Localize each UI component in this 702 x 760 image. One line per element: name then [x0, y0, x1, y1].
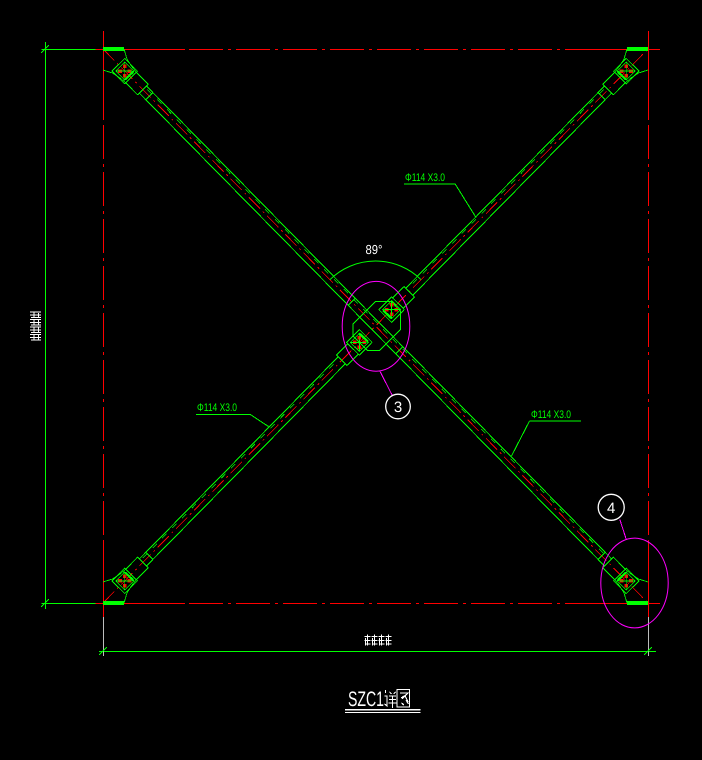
- svg-text:89°: 89°: [366, 242, 383, 257]
- svg-text:Φ114 X3.0: Φ114 X3.0: [531, 409, 571, 421]
- svg-text:Φ114 X3.0: Φ114 X3.0: [405, 172, 445, 184]
- svg-text:SZC1: SZC1: [348, 688, 384, 711]
- svg-text:4: 4: [607, 500, 615, 517]
- svg-text:3: 3: [394, 399, 402, 416]
- svg-text:Φ114 X3.0: Φ114 X3.0: [197, 402, 237, 414]
